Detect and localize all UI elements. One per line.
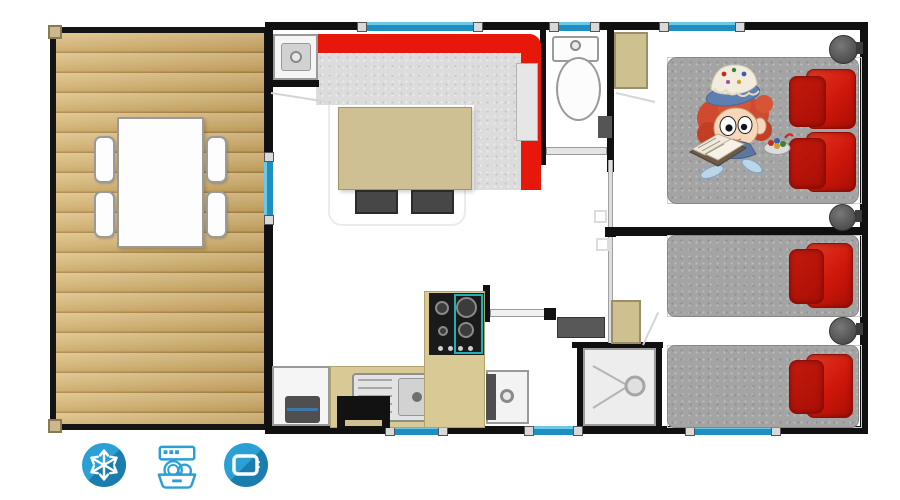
window-wc: [552, 22, 597, 31]
bedside-accessory: [856, 323, 863, 335]
vanity-side-panel: [486, 374, 496, 420]
terrace-patio-door: [264, 155, 273, 222]
pillow: [789, 76, 826, 127]
chair: [94, 136, 115, 183]
sofa-side-shelf: [516, 63, 538, 141]
hob-knob: [468, 346, 473, 351]
bedside-accessory: [856, 42, 863, 54]
wall-wc-bedroom: [607, 30, 614, 172]
stool: [355, 190, 398, 214]
tv-glyph: [224, 443, 268, 487]
window-living-room: [360, 22, 480, 31]
hob-knob: [458, 346, 463, 351]
hob-knob: [438, 346, 443, 351]
entrance-door-hinge: [544, 308, 556, 320]
dishwasher-icon: [155, 444, 199, 495]
bedside-table: [829, 317, 857, 345]
wall-box: [598, 116, 612, 138]
window-bedroom-double: [662, 22, 742, 31]
pillow: [789, 249, 824, 304]
cartoon-girl-illustration: [676, 58, 794, 194]
hall-bench: [557, 317, 605, 338]
window-entrance: [527, 426, 580, 435]
burner: [435, 301, 449, 315]
utility-cabinet-knob: [290, 51, 302, 63]
air-conditioning-icon: [82, 443, 126, 492]
stool: [411, 190, 454, 214]
shower-tray: [583, 348, 656, 426]
chair: [206, 136, 227, 183]
shower-tray-marks: [585, 350, 654, 424]
sofa-back-top: [316, 34, 541, 53]
bedside-table: [829, 204, 856, 231]
sink-drain: [412, 392, 422, 402]
door-handle-mark: [596, 238, 609, 251]
floor-plan: [0, 0, 900, 500]
wc-sliding-door: [546, 147, 607, 155]
sofa-seat-corner: [474, 53, 521, 190]
chair: [94, 191, 115, 238]
wall-cabinet-stub: [269, 80, 319, 87]
toilet-bowl: [556, 57, 601, 121]
wardrobe: [614, 32, 648, 89]
oven-handle: [345, 420, 382, 426]
wall-shower-right: [656, 342, 662, 428]
deck-post-bottom-left: [48, 419, 62, 433]
hob-outline: [454, 294, 483, 354]
vanity-basin: [500, 389, 514, 403]
toilet-flush-button: [570, 40, 581, 51]
bedside-table: [829, 35, 858, 64]
dishwasher-glyph: [155, 444, 199, 490]
door-junction-post: [605, 227, 616, 237]
entrance-door-leaf: [490, 309, 545, 317]
pillow: [789, 138, 826, 189]
pillow: [789, 360, 824, 414]
coffee-table: [338, 107, 472, 190]
door-handle-mark: [594, 210, 607, 223]
dining-table: [117, 117, 204, 248]
fridge-handle: [287, 408, 318, 411]
bedside-accessory: [855, 210, 862, 222]
sofa-seat-top: [316, 53, 474, 105]
burner: [438, 326, 448, 336]
deck-post-top-left: [48, 25, 62, 39]
hob-knob: [448, 346, 453, 351]
snowflake-icon: [82, 443, 126, 487]
chair: [206, 191, 227, 238]
amenities-bar: [60, 440, 300, 496]
wardrobe: [611, 300, 641, 344]
tv-icon: [224, 443, 268, 492]
